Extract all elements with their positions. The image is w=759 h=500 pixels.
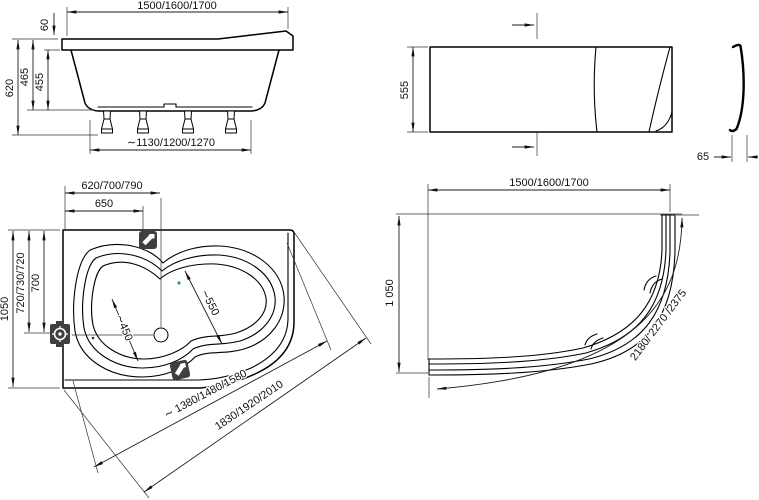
dim-label-apron-length: 1500/1600/1700 (509, 177, 589, 189)
apron-edge-inner (429, 215, 662, 359)
front-panel-corner-curve-2 (656, 112, 672, 131)
side-view-leg (102, 111, 113, 133)
front-panel-corner-curve (649, 47, 670, 132)
faucet-icon (139, 231, 157, 249)
drain-centerline (72, 198, 161, 335)
apron-view: 1500/1600/1700 1 050 2180/ 2270 /2375 (384, 177, 699, 398)
side-view-frame (98, 104, 252, 107)
dim-label-support-span: ∼1130/1200/1270 (127, 137, 215, 149)
panel-side-profile (730, 45, 744, 131)
dim-label-total-height: 620 (4, 79, 16, 97)
front-panel-outline (430, 47, 672, 132)
dim-label-drain-offset: 700 (30, 274, 42, 292)
side-view-rim (62, 31, 293, 50)
side-view-leg (183, 111, 194, 133)
faucet-icon (169, 359, 190, 380)
dim-label-panel-height: 555 (399, 81, 411, 99)
front-panel-seam (594, 47, 597, 132)
extension-line (12, 7, 288, 154)
dim-label-drain-offset-variants: 720/730/720 (15, 252, 27, 313)
jet-dot (177, 281, 180, 284)
dim-label-rim-drop: 60 (39, 19, 51, 31)
drain-fitting-icon (50, 321, 70, 347)
dim-label-height-outer: 465 (19, 68, 31, 86)
dim-label-seat-width: ∼450 (113, 313, 135, 343)
dim-label-width: 1050 (0, 297, 11, 321)
extension-line (732, 135, 747, 162)
dim-label-basin-width: ∼550 (198, 288, 221, 318)
front-panel-view: 555 65 (399, 13, 758, 163)
bathtub-technical-drawing: 1500/1600/1700 60 620 465 455 ∼1130/1200… (0, 0, 759, 500)
dim-label-apron-height: 1 050 (384, 279, 396, 307)
side-view: 1500/1600/1700 60 620 465 455 ∼1130/1200… (4, 0, 293, 154)
side-view-body (71, 50, 279, 111)
dim-label-profile-depth: 65 (697, 151, 709, 163)
drawing-sheet: 1500/1600/1700 60 620 465 455 ∼1130/1200… (0, 0, 759, 500)
drain-fitting-dot (58, 332, 61, 335)
side-view-leg (226, 111, 237, 133)
dim-line-inner-edge (94, 341, 327, 467)
dim-label-back-offset: 620/700/790 (81, 180, 142, 192)
drain-circle (154, 328, 168, 342)
plan-basin-inner (92, 262, 267, 359)
side-view-leg (138, 111, 149, 133)
dim-label-faucet-offset: 650 (95, 198, 113, 210)
dim-label-height-inner: 455 (34, 73, 46, 91)
plan-view: 620/700/790 650 1050 720/730/720 700 ∼45… (0, 180, 371, 498)
dim-label-length: 1500/1600/1700 (137, 0, 217, 12)
marking-dot (92, 337, 95, 340)
